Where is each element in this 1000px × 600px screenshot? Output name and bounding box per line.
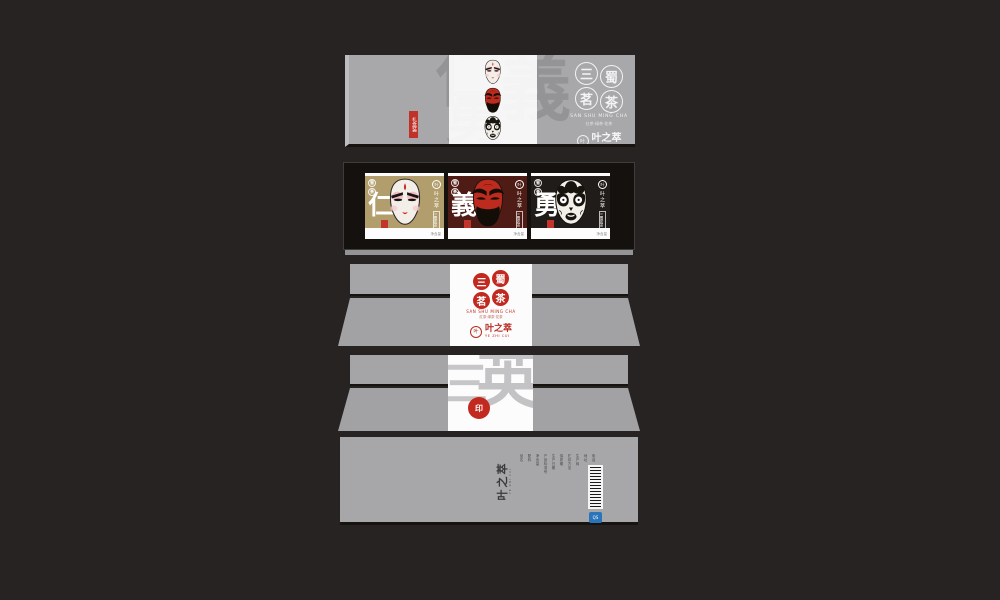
tea-card-yong: 蜀 茶 勇 叶 叶之萃 三蜀茗茶 — [531, 173, 610, 239]
info-label: 生产商 — [576, 454, 581, 514]
qs-certification-mark: QS — [589, 512, 602, 523]
presentation-canvas: 仁 義 勇 — [0, 0, 1000, 600]
info-label: 生产日期 — [552, 454, 557, 514]
brand-name-vertical: 叶之萃 — [516, 191, 523, 209]
info-label: 净含量 — [536, 454, 541, 514]
brand-name-vertical: 叶之萃 — [599, 191, 606, 209]
net-weight-label: 净含量 — [597, 232, 608, 237]
brand-name: 叶之萃 — [485, 325, 512, 334]
tea-categories: 红茶·绿茶·花茶 — [450, 315, 532, 320]
front-white-band: 三 蜀 茗 茶 SAN SHU MING CHA 红茶·绿茶·花茶 叶 叶之萃 … — [450, 264, 532, 346]
seal-char-shu: 蜀 — [492, 270, 509, 287]
brand-pinyin: YE ZHI CUI — [485, 334, 512, 338]
card-brand-column: 叶 叶之萃 三蜀茗茶 — [431, 180, 442, 228]
brand-name: 叶之萃 — [592, 134, 622, 144]
brand-logo-icon: 叶 — [577, 135, 589, 147]
seal-char-ming: 茗 — [473, 292, 490, 309]
liubei-mask-icon — [384, 177, 426, 227]
mini-seal-shu: 蜀 — [368, 179, 376, 187]
product-pinyin: SAN SHU MING CHA — [450, 309, 532, 314]
guanyu-mask-icon — [482, 87, 504, 113]
brand-name-vertical: 叶之萃 — [433, 191, 440, 209]
zhangfei-mask-icon — [550, 177, 592, 227]
product-pinyin: SAN SHU MING CHA — [565, 114, 633, 119]
product-name-vertical: 三蜀茗茶 — [599, 211, 606, 228]
box-bottom-panel: 叶之萃 YE ZHI CUI 品名 配料 净含量 产品标准号 生产日期 保质期 … — [340, 437, 638, 525]
info-label: 品名 — [520, 454, 525, 514]
brand-logo-icon: 叶 — [515, 180, 524, 189]
brand-logo: 叶 叶之萃 YE ZHI CUI — [450, 325, 532, 338]
brand-logo-icon: 叶 — [598, 180, 607, 189]
seal-char-cha: 茶 — [600, 90, 623, 113]
seal-char-san: 三 — [473, 273, 490, 290]
brand-name: 叶之萃 — [497, 457, 508, 505]
brand-logo: 叶 叶之萃 YE ZHI CUI — [565, 134, 633, 147]
info-label: 贮存方法 — [568, 454, 573, 514]
info-label: 产品标准号 — [544, 454, 549, 514]
barcode — [588, 465, 603, 509]
tea-categories: 红茶·绿茶·花茶 — [565, 121, 633, 127]
brand-rotated: 叶之萃 YE ZHI CUI — [497, 457, 515, 505]
net-weight-label: 净含量 — [431, 232, 442, 237]
brand-logo-icon: 叶 — [470, 326, 482, 338]
zhangfei-mask-icon — [482, 115, 504, 141]
seal-char-ming: 茗 — [575, 87, 598, 110]
box-lid-top: 仁 義 勇 — [345, 55, 635, 147]
mini-seal-shu: 蜀 — [451, 179, 459, 187]
product-info-text: 品名 配料 净含量 产品标准号 生产日期 保质期 贮存方法 生产商 地址 电话 — [520, 454, 597, 514]
brand-logo-icon: 叶 — [432, 180, 441, 189]
info-label: 配料 — [528, 454, 533, 514]
frame-base-edge — [345, 250, 633, 255]
product-name-vertical: 三蜀茗茶 — [433, 211, 440, 228]
tea-card-yi: 蜀 茶 義 叶 叶之萃 三蜀茗茶 净含量 — [448, 173, 527, 239]
seal-char-shu: 蜀 — [600, 65, 623, 88]
info-label: 保质期 — [560, 454, 565, 514]
card-brand-column: 叶 叶之萃 三蜀茗茶 — [597, 180, 608, 228]
tea-card-ren: 蜀 茶 仁 叶 叶之萃 三蜀茗茶 净含量 — [365, 173, 444, 239]
mini-seal-shu: 蜀 — [534, 179, 542, 187]
net-weight-label: 净含量 — [514, 232, 525, 237]
product-name-seals-red: 三 蜀 茗 茶 — [473, 270, 509, 306]
card-brand-column: 叶 叶之萃 三蜀茗茶 — [514, 180, 525, 228]
seal-char-san: 三 — [575, 62, 598, 85]
guanyu-mask-icon — [467, 177, 509, 227]
seal-char-cha: 茶 — [492, 289, 509, 306]
lid-brand-block: 三 蜀 茗 茶 SAN SHU MING CHA 红茶·绿茶·花茶 叶 叶之萃 … — [565, 62, 633, 147]
brand-pinyin: YE ZHI CUI — [592, 144, 622, 147]
red-stamp-seal: 印 — [468, 397, 490, 419]
back-white-band: 三 英 印 — [448, 355, 533, 431]
product-name-vertical: 三蜀茗茶 — [516, 211, 523, 228]
lid-white-panel — [449, 55, 537, 144]
liubei-mask-icon — [482, 59, 504, 85]
gift-ribbon-label: 礼盒装 — [409, 111, 418, 138]
product-name-seals-outline: 三 蜀 茗 茶 — [575, 62, 623, 110]
